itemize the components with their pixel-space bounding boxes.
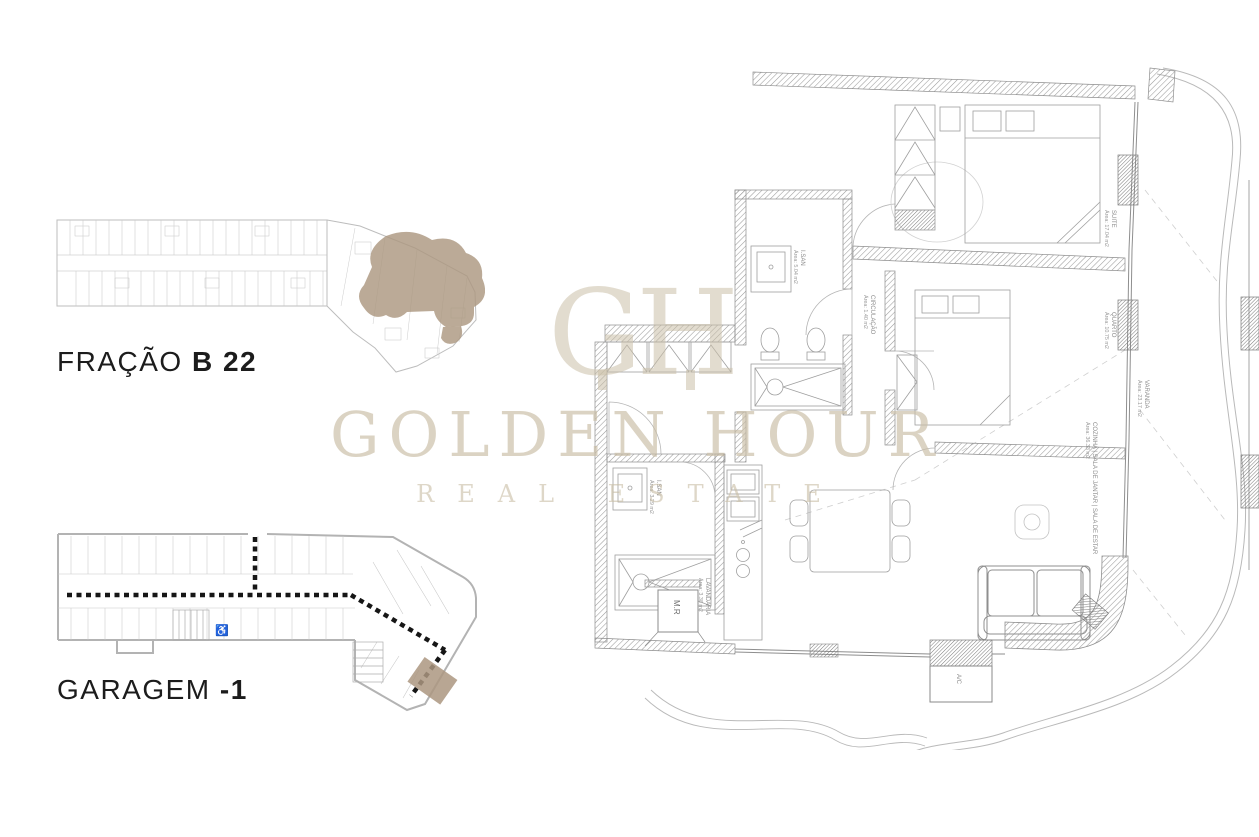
room-label-varanda: VARANDA bbox=[1143, 380, 1149, 409]
room-area-isan-bottom: Área: 3.29 m2 bbox=[648, 480, 655, 514]
room-area-lavandaria: Área: 3.38 m2 bbox=[697, 578, 704, 612]
garage-caption: GARAGEM -1 bbox=[57, 674, 248, 706]
apartment-plan: A/C SUITE Área: 17.04 m2 QUARTO Área: 10… bbox=[585, 50, 1259, 750]
kitchen-counter bbox=[724, 465, 762, 640]
room-area-circulacao: Área: 1.40 m2 bbox=[862, 295, 869, 329]
room-area-suite: Área: 17.04 m2 bbox=[1103, 210, 1110, 247]
suite-furniture bbox=[891, 105, 1100, 243]
quarto-furniture bbox=[897, 290, 1010, 425]
accessible-parking-icon: ♿ bbox=[215, 624, 229, 637]
room-label-suite: SUITE bbox=[1110, 210, 1116, 228]
glass-walls bbox=[735, 102, 1249, 657]
room-label-circulacao: CIRCULAÇÃO bbox=[869, 295, 876, 335]
fraction-highlight bbox=[359, 232, 485, 327]
room-label-isan-bottom: I.SAN bbox=[655, 480, 661, 496]
dining-table bbox=[790, 490, 910, 572]
side-table bbox=[1015, 505, 1049, 539]
window-pillars bbox=[1118, 155, 1259, 508]
room-label-mr: M.R bbox=[672, 600, 681, 615]
floorplan-sheet: FRAÇÃO B 22 ♿ GARAGEM bbox=[0, 0, 1259, 837]
wall-block bbox=[810, 644, 838, 657]
hall-closets bbox=[607, 342, 731, 372]
laundry bbox=[645, 590, 705, 646]
room-area-isan-top: Área: 5.04 m2 bbox=[792, 250, 799, 284]
fraction-caption-bold: B 22 bbox=[192, 346, 257, 377]
garage-stairs bbox=[173, 610, 383, 682]
garage-caption-light: GARAGEM bbox=[57, 674, 211, 705]
room-area-varanda: Área: 23.17 m2 bbox=[1136, 380, 1143, 417]
room-label-lavandaria: LAVANDARIA bbox=[704, 578, 710, 615]
garage-highlight-space bbox=[407, 657, 457, 705]
garage-caption-bold: -1 bbox=[220, 674, 248, 705]
room-label-isan-top: I.SAN bbox=[799, 250, 805, 266]
room-label-cozinha-sala: COZINHA | SALA DE JANTAR | SALA DE ESTAR bbox=[1091, 422, 1097, 555]
fraction-caption: FRAÇÃO B 22 bbox=[57, 346, 257, 378]
ac-unit: A/C bbox=[930, 640, 992, 702]
room-label-ac: A/C bbox=[955, 674, 961, 685]
room-area-quarto: Área: 10.75 m2 bbox=[1103, 312, 1110, 349]
room-label-quarto: QUARTO bbox=[1110, 312, 1116, 338]
fraction-caption-light: FRAÇÃO bbox=[57, 346, 183, 377]
room-area-cozinha-sala: Área: 36.33 m2 bbox=[1084, 422, 1091, 459]
